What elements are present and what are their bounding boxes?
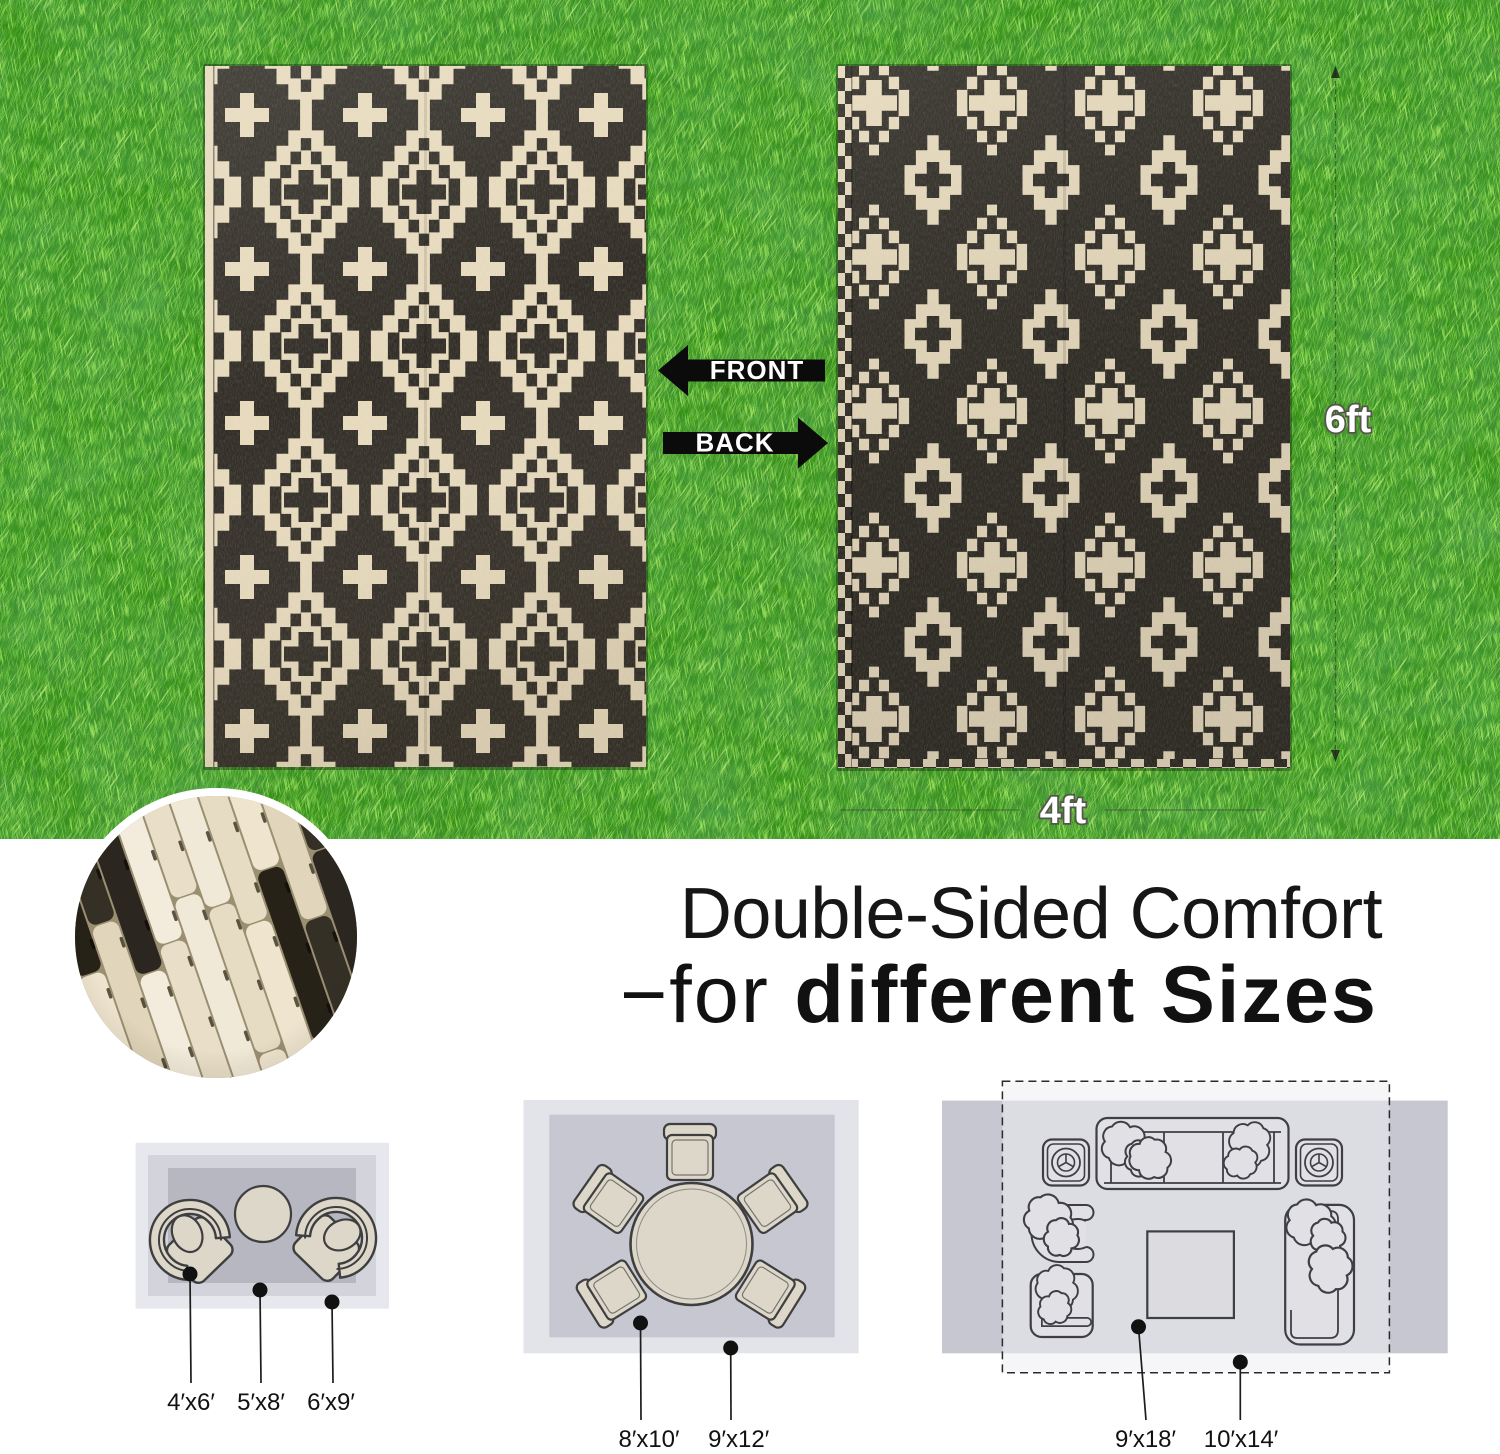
svg-text:−for different Sizes: −for different Sizes: [620, 950, 1378, 1040]
svg-text:4′x6′: 4′x6′: [167, 1389, 215, 1416]
svg-text:5′x8′: 5′x8′: [237, 1389, 285, 1416]
svg-text:9′x18′: 9′x18′: [1115, 1426, 1177, 1453]
svg-text:6′x9′: 6′x9′: [307, 1389, 355, 1416]
svg-text:6ft: 6ft: [1325, 399, 1372, 441]
svg-text:10′x14′: 10′x14′: [1204, 1426, 1279, 1453]
svg-text:Double-Sided Comfort: Double-Sided Comfort: [680, 874, 1383, 954]
svg-text:FRONT: FRONT: [710, 355, 805, 385]
svg-text:BACK: BACK: [695, 428, 774, 458]
svg-text:4ft: 4ft: [1040, 790, 1087, 832]
svg-text:9′x12′: 9′x12′: [708, 1426, 770, 1453]
svg-text:8′x10′: 8′x10′: [618, 1426, 680, 1453]
